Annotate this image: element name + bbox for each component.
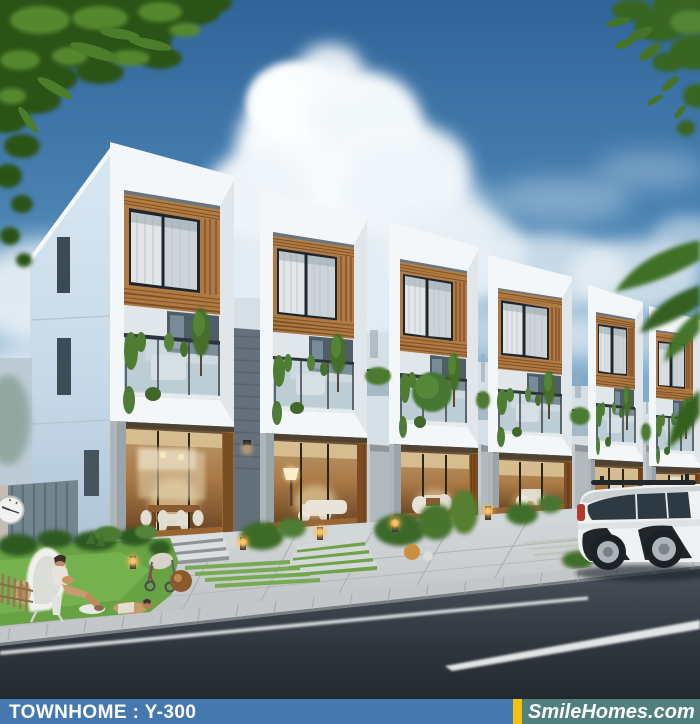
svg-text:TOWNHOME : Y-300: TOWNHOME : Y-300: [9, 702, 196, 723]
svg-text:SmileHomes.com: SmileHomes.com: [528, 701, 695, 723]
